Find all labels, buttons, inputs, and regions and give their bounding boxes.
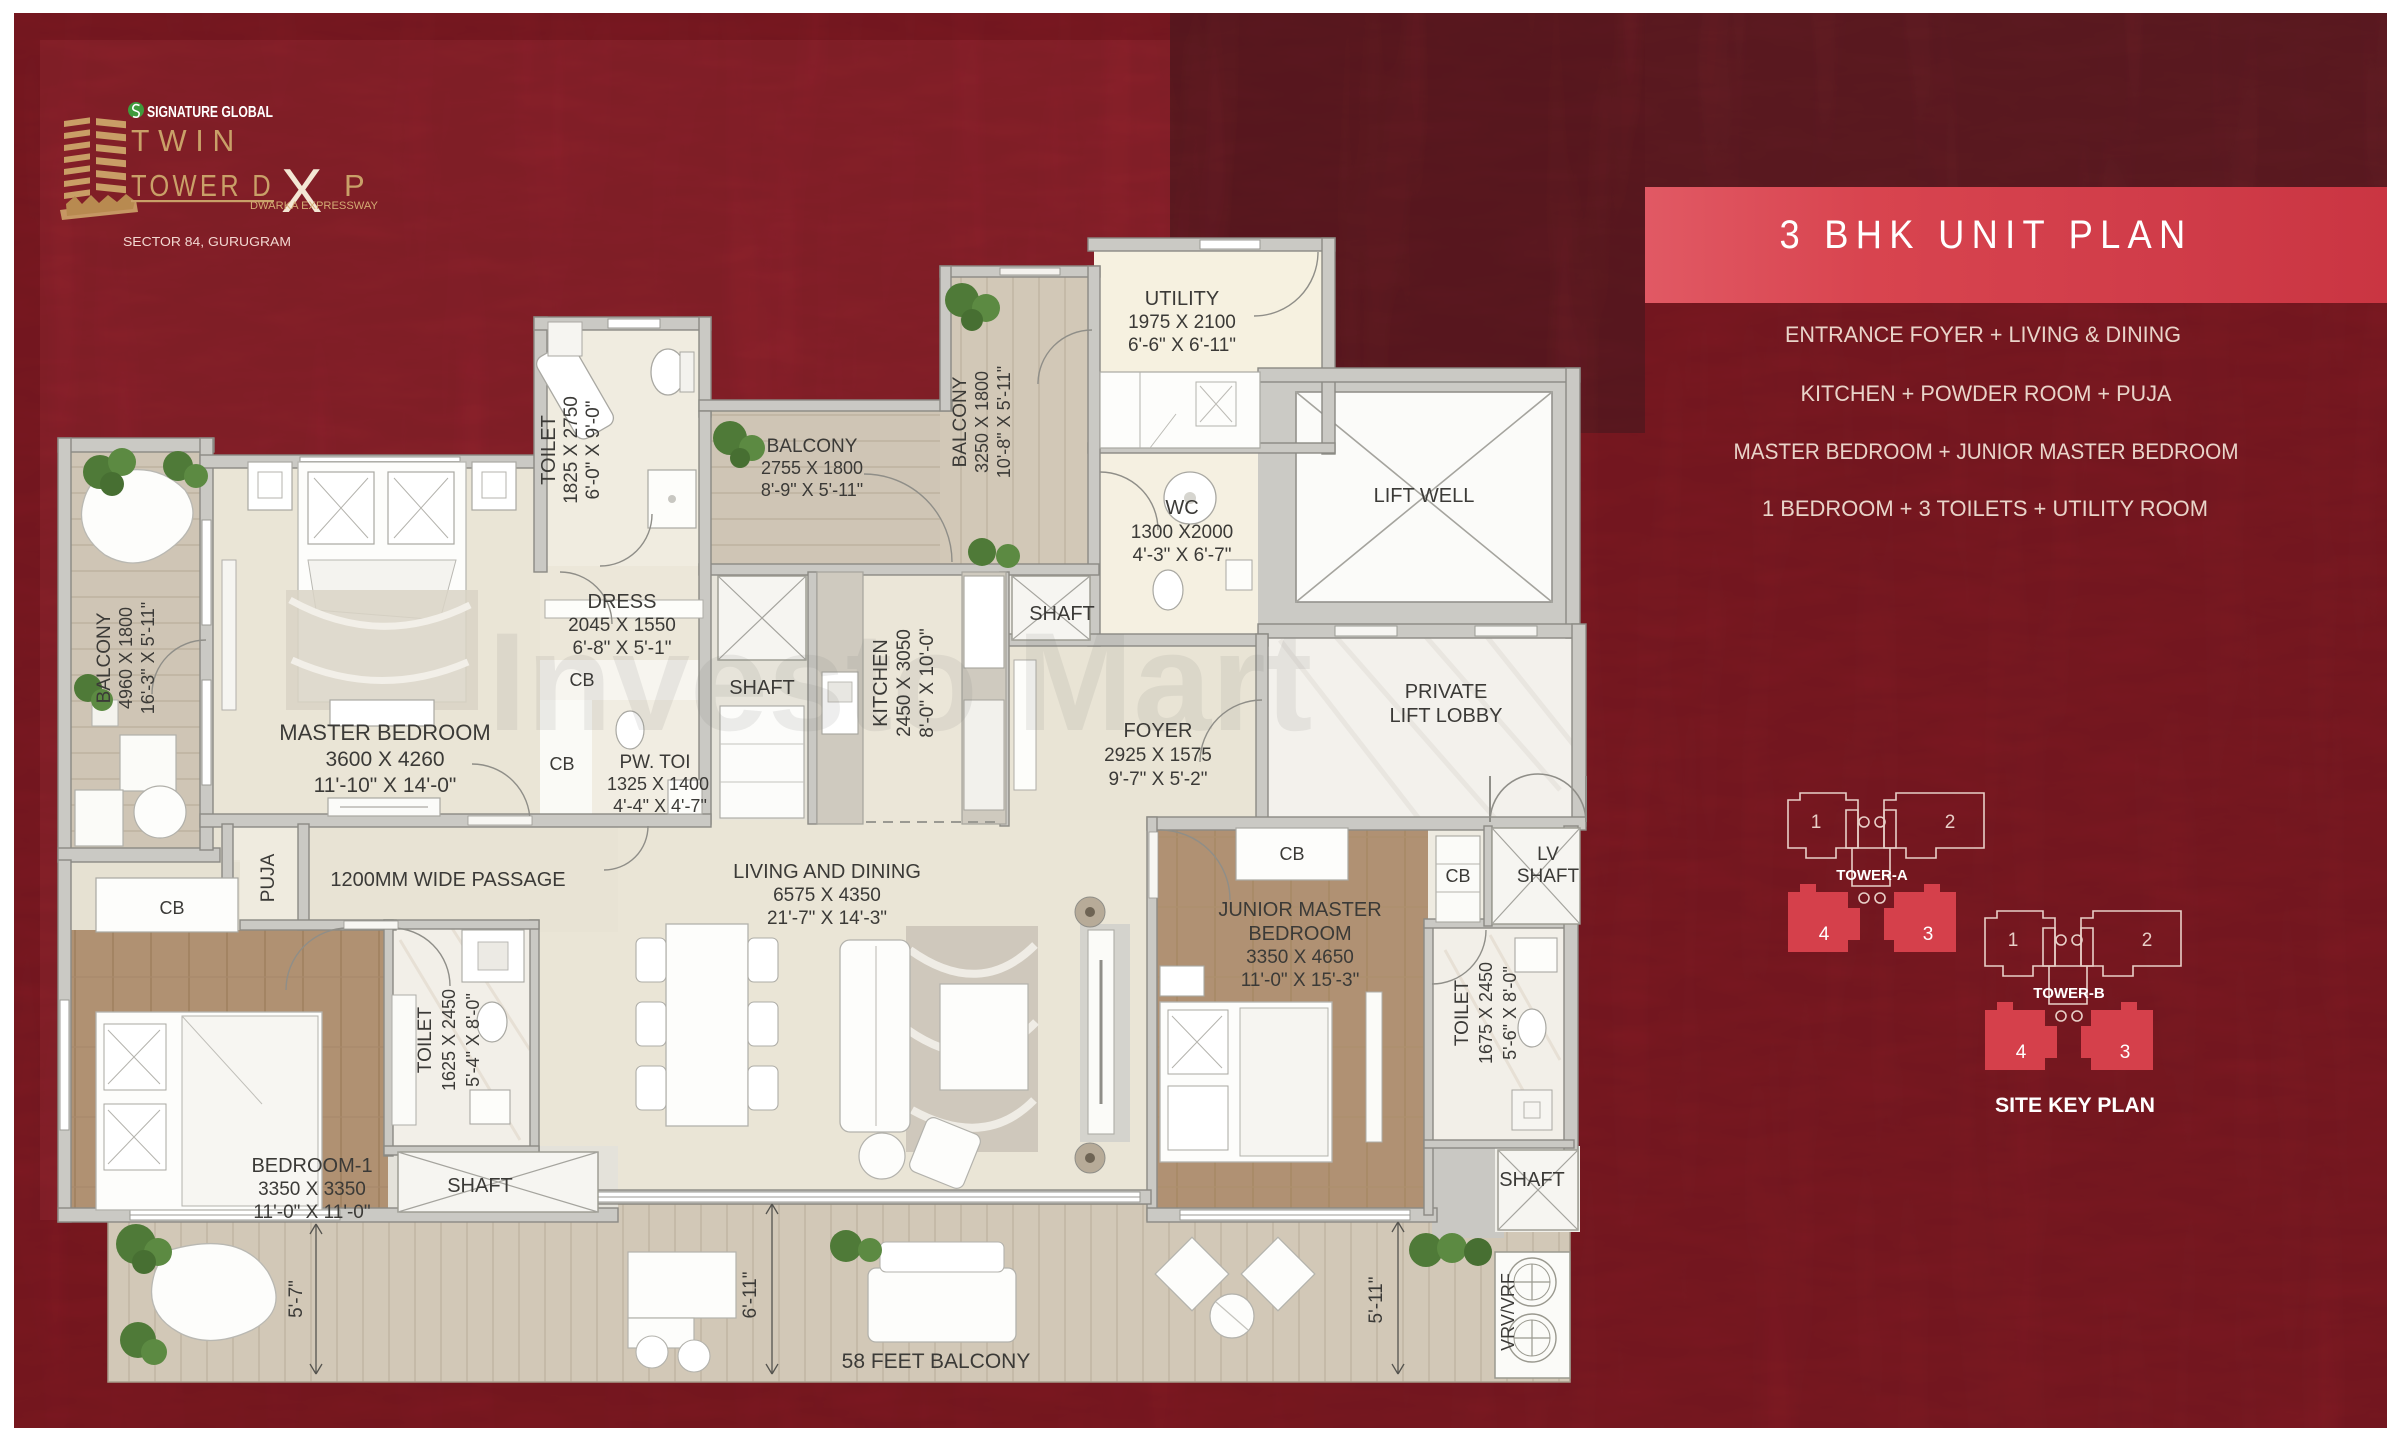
svg-text:BEDROOM: BEDROOM [1248,923,1351,945]
svg-text:CB: CB [549,754,574,774]
svg-text:1325 X 1400: 1325 X 1400 [607,774,709,794]
svg-text:4'-3" X 6'-7": 4'-3" X 6'-7" [1133,545,1232,566]
svg-text:CB: CB [159,898,184,918]
svg-text:ENTRANCE FOYER + LIVING & DINI: ENTRANCE FOYER + LIVING & DINING [1785,322,2181,347]
svg-text:2045 X 1550: 2045 X 1550 [568,615,676,636]
svg-text:3600 X 4260: 3600 X 4260 [325,748,444,771]
svg-text:LIFT LOBBY: LIFT LOBBY [1389,705,1502,727]
svg-text:6'-11": 6'-11" [740,1272,761,1319]
svg-text:1200MM WIDE PASSAGE: 1200MM WIDE PASSAGE [330,869,565,891]
svg-text:UTILITY: UTILITY [1145,288,1219,310]
svg-text:6'-0" X 9'-0": 6'-0" X 9'-0" [583,401,604,500]
svg-text:1675 X 2450: 1675 X 2450 [1476,962,1496,1064]
svg-text:LV: LV [1537,844,1559,865]
svg-text:6'-6" X 6'-11": 6'-6" X 6'-11" [1128,335,1236,356]
svg-text:4'-4" X 4'-7": 4'-4" X 4'-7" [613,796,707,816]
svg-text:SHAFT: SHAFT [447,1175,513,1197]
svg-text:1825 X 2750: 1825 X 2750 [561,396,582,504]
svg-text:11'-0" X 11'-0": 11'-0" X 11'-0" [253,1202,370,1223]
svg-text:6575 X 4350: 6575 X 4350 [773,885,881,906]
svg-text:VRV/VRF: VRV/VRF [1498,1273,1518,1351]
svg-text:1300 X2000: 1300 X2000 [1131,522,1234,543]
svg-text:TOILET: TOILET [415,1007,436,1074]
svg-text:SHAFT: SHAFT [1029,603,1095,625]
svg-text:JUNIOR MASTER: JUNIOR MASTER [1218,899,1381,921]
svg-text:X: X [281,157,322,226]
svg-text:2755 X 1800: 2755 X 1800 [761,458,863,478]
svg-text:WC: WC [1165,497,1198,519]
svg-text:MASTER BEDROOM + JUNIOR MASTER: MASTER BEDROOM + JUNIOR MASTER BEDROOM [1734,439,2239,464]
svg-text:LIVING AND DINING: LIVING AND DINING [733,861,921,883]
svg-text:LIFT WELL: LIFT WELL [1374,485,1475,507]
svg-text:4960 X 1800: 4960 X 1800 [116,607,136,709]
svg-text:16'-3" X 5'-11": 16'-3" X 5'-11" [138,602,158,714]
svg-text:SECTOR 84, GURUGRAM: SECTOR 84, GURUGRAM [123,234,291,249]
svg-text:BALCONY: BALCONY [950,376,971,467]
svg-text:3350 X 3350: 3350 X 3350 [258,1179,366,1200]
svg-text:3 BHK UNIT PLAN: 3 BHK UNIT PLAN [1780,213,2193,257]
svg-text:SIGNATURE GLOBAL: SIGNATURE GLOBAL [147,104,273,121]
svg-text:SHAFT: SHAFT [1517,866,1580,887]
svg-text:3: 3 [1923,924,1934,945]
svg-text:CB: CB [569,670,594,690]
svg-text:PUJA: PUJA [258,853,279,902]
svg-text:2: 2 [2142,930,2153,951]
svg-text:10'-8" X 5'-11": 10'-8" X 5'-11" [994,366,1014,478]
svg-text:1: 1 [2008,930,2019,951]
svg-text:6'-8" X 5'-1": 6'-8" X 5'-1" [573,638,672,659]
svg-text:TOWER-A: TOWER-A [1836,867,1908,884]
svg-text:5'-4" X 8'-0": 5'-4" X 8'-0" [463,993,483,1087]
svg-text:2: 2 [1945,812,1956,833]
svg-text:KITCHEN: KITCHEN [870,639,892,727]
svg-text:11'-10" X 14'-0": 11'-10" X 14'-0" [314,774,457,797]
svg-text:BALCONY: BALCONY [94,612,115,703]
svg-text:3250 X 1800: 3250 X 1800 [972,371,992,473]
svg-text:11'-0" X 15'-3": 11'-0" X 15'-3" [1241,970,1360,991]
svg-text:4: 4 [2016,1042,2027,1063]
svg-text:TWIN: TWIN [131,123,243,158]
svg-text:PW. TOI: PW. TOI [619,752,690,773]
svg-text:3350 X 4650: 3350 X 4650 [1246,947,1354,968]
svg-text:9'-7" X 5'-2": 9'-7" X 5'-2" [1109,769,1208,790]
svg-text:BEDROOM-1: BEDROOM-1 [251,1155,372,1177]
svg-text:SHAFT: SHAFT [1499,1169,1565,1191]
svg-text:PRIVATE: PRIVATE [1405,681,1488,703]
svg-text:FOYER: FOYER [1124,720,1193,742]
svg-text:BALCONY: BALCONY [767,436,858,457]
svg-text:1975 X 2100: 1975 X 2100 [1128,312,1236,333]
svg-text:TOILET: TOILET [1452,980,1473,1047]
svg-text:P: P [344,168,365,203]
svg-text:TOILET: TOILET [538,415,560,485]
svg-text:TOWER D: TOWER D [131,168,274,203]
svg-text:SITE KEY PLAN: SITE KEY PLAN [1995,1094,2155,1117]
svg-text:KITCHEN + POWDER ROOM + PUJA: KITCHEN + POWDER ROOM + PUJA [1801,381,2172,406]
svg-text:5'-11": 5'-11" [1366,1277,1387,1324]
svg-text:DRESS: DRESS [588,591,657,613]
svg-text:5'-7": 5'-7" [286,1280,307,1318]
svg-text:2450 X 3050: 2450 X 3050 [894,629,915,737]
svg-text:21'-7" X 14'-3": 21'-7" X 14'-3" [767,908,887,929]
svg-text:MASTER BEDROOM: MASTER BEDROOM [279,720,490,745]
svg-text:TOWER-B: TOWER-B [2033,985,2105,1002]
svg-text:1: 1 [1811,812,1822,833]
svg-text:2925 X 1575: 2925 X 1575 [1104,745,1212,766]
svg-text:1625 X 2450: 1625 X 2450 [439,989,459,1091]
svg-text:8'-9" X 5'-11": 8'-9" X 5'-11" [761,480,863,500]
svg-text:CB: CB [1445,866,1470,886]
svg-text:DWARKA EXPRESSWAY: DWARKA EXPRESSWAY [250,200,379,212]
svg-text:CB: CB [1279,844,1304,864]
svg-text:SHAFT: SHAFT [729,677,795,699]
svg-text:3: 3 [2120,1042,2131,1063]
svg-text:4: 4 [1819,924,1830,945]
svg-text:58 FEET BALCONY: 58 FEET BALCONY [842,1350,1031,1373]
svg-text:1 BEDROOM + 3 TOILETS + UTILIT: 1 BEDROOM + 3 TOILETS + UTILITY ROOM [1762,496,2208,521]
svg-text:8'-0" X 10'-0": 8'-0" X 10'-0" [917,628,938,737]
svg-text:5'-6" X 8'-0": 5'-6" X 8'-0" [1500,966,1520,1060]
